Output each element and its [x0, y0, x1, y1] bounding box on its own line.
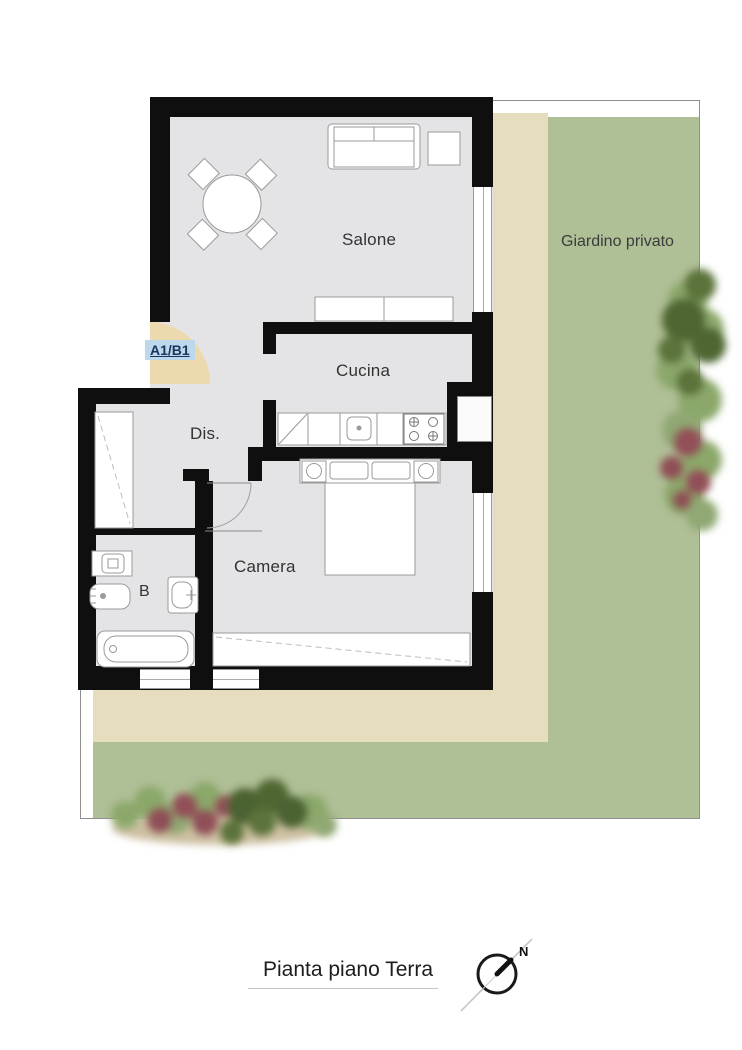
- compass-north-label: N: [519, 944, 528, 959]
- compass-icon: [0, 0, 742, 1050]
- floor-plan-page: Salone Giardino privato Cucina Dis. Came…: [0, 0, 742, 1050]
